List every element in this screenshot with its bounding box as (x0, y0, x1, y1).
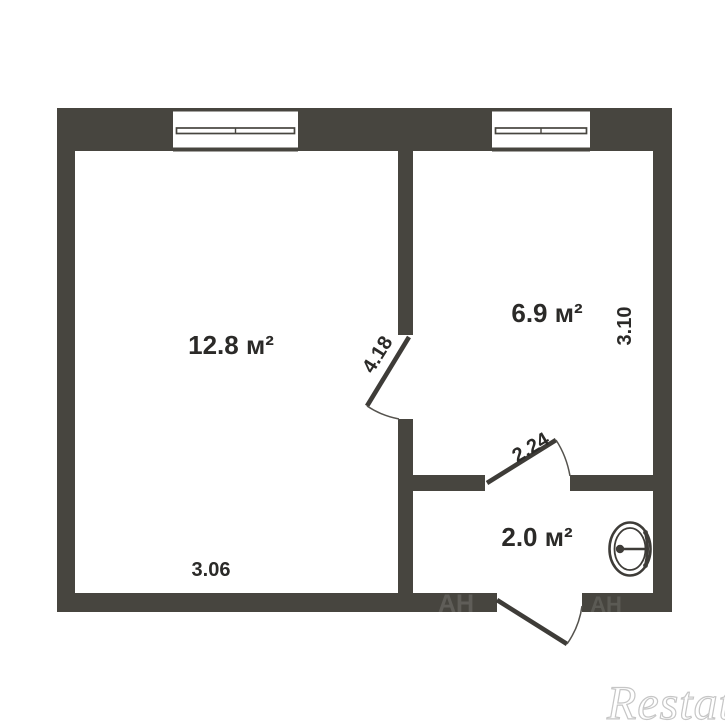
window-inner-line (173, 148, 298, 152)
wall-bottom-left-segment (57, 593, 497, 612)
door-entrance (497, 600, 582, 644)
room-area-label-right-room: 6.9 м² (511, 298, 583, 328)
toilet-flush-knob (616, 545, 624, 553)
dimension-label-4-18: 4.18 (358, 332, 397, 377)
wall-hall-left (413, 475, 485, 491)
toilet-icon (610, 523, 651, 576)
window-left (173, 108, 298, 152)
wall-watermark-left: АН (438, 590, 474, 618)
door-swing-arc (367, 406, 399, 419)
floor-plan-drawing: 12.8 м² 6.9 м² 2.0 м² 4.18 3.10 2.24 3.0… (0, 0, 725, 725)
dimension-label-3-10: 3.10 (614, 307, 636, 346)
wall-hall-right (570, 475, 653, 491)
dimension-label-3-06: 3.06 (192, 559, 231, 581)
wall-divider-vertical-upper (398, 151, 413, 335)
door-leaf (497, 600, 567, 644)
wall-watermark-right: АН (590, 592, 622, 617)
window-outer-line (492, 108, 590, 112)
wall-right (653, 108, 672, 612)
restate-watermark: Restate (606, 677, 725, 725)
door-swing-arc (567, 606, 582, 644)
toilet-bar-end-bottom (643, 563, 648, 568)
wall-top-middle-segment (298, 108, 492, 151)
wall-divider-vertical-lower (398, 419, 413, 593)
window-outer-line (173, 108, 298, 112)
floor-plan-canvas: 12.8 м² 6.9 м² 2.0 м² 4.18 3.10 2.24 3.0… (0, 0, 725, 725)
window-inner-line (492, 148, 590, 152)
wall-left (57, 108, 75, 612)
toilet-bar-end-top (643, 530, 648, 535)
room-area-label-bathroom: 2.0 м² (501, 522, 573, 552)
door-swing-arc (556, 440, 570, 476)
dimension-label-2-24: 2.24 (509, 428, 554, 467)
window-right (492, 108, 590, 152)
room-area-label-living: 12.8 м² (188, 330, 274, 360)
